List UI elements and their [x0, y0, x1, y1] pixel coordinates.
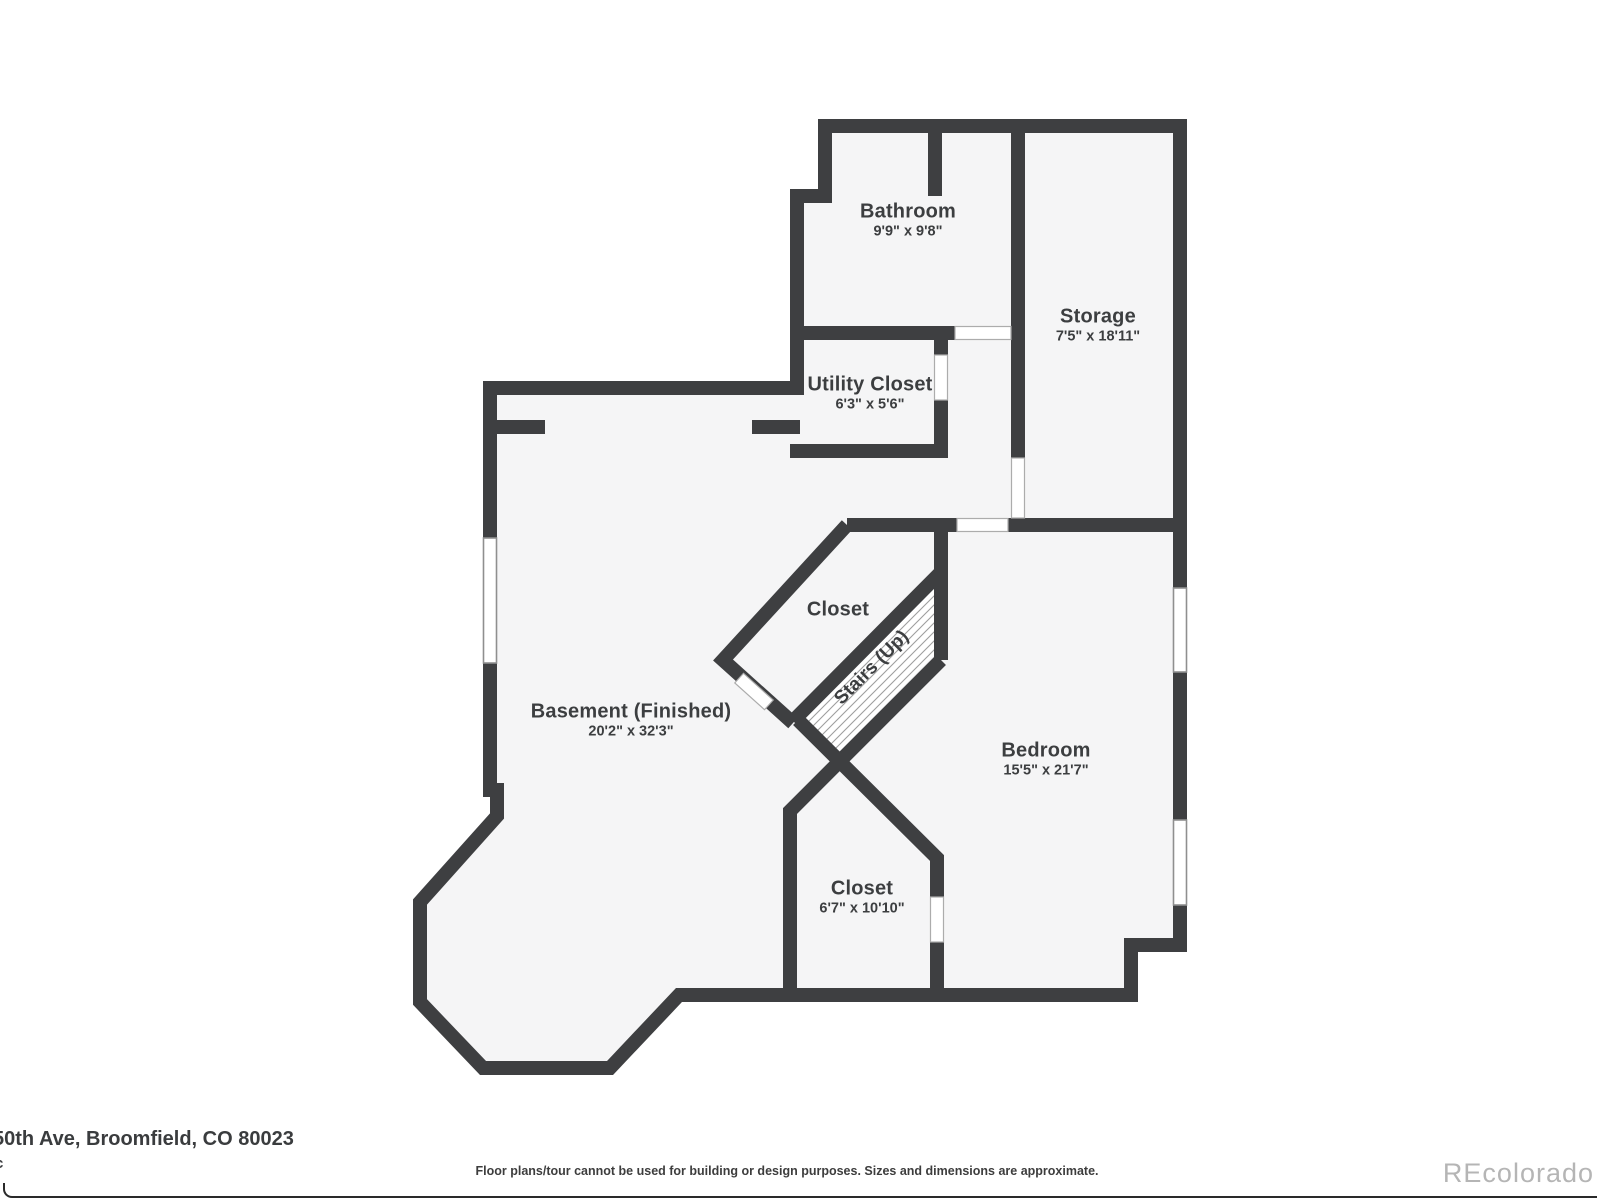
basement-window [484, 538, 497, 663]
floor-plan-canvas [0, 0, 1600, 1200]
storage-door [1012, 458, 1025, 518]
bathroom-opening [955, 327, 1011, 340]
exterior-wall-outline [420, 126, 1180, 1068]
bedroom-window-upper [1174, 588, 1187, 672]
bedroom-window-lower [1174, 820, 1187, 905]
disclaimer-text: Floor plans/tour cannot be used for buil… [475, 1164, 1098, 1178]
bedroom-opening [957, 519, 1008, 532]
page-border [3, 1183, 1597, 1198]
lower-closet-door [931, 897, 944, 942]
address-text-line2-partial: c [0, 1155, 3, 1172]
utility-closet-door [935, 355, 948, 400]
address-text: 50th Ave, Broomfield, CO 80023 [0, 1128, 294, 1151]
